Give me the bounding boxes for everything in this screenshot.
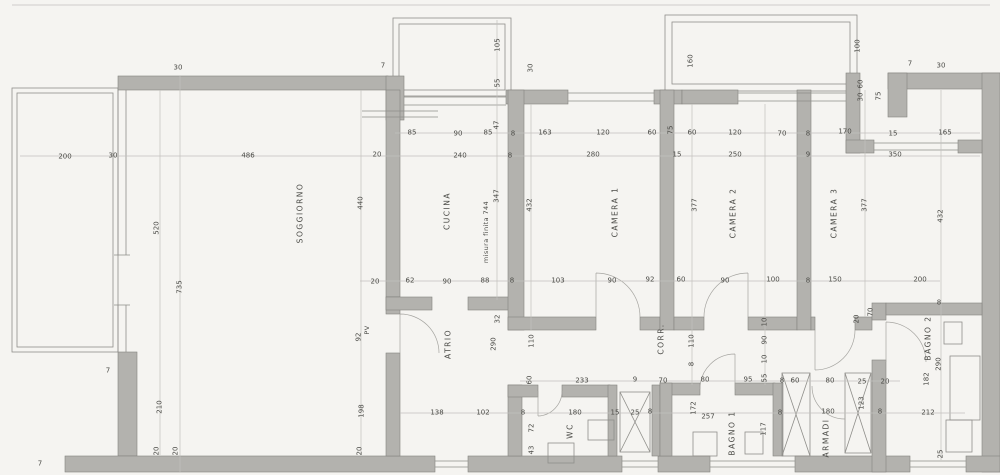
windows-and-openings: [114, 90, 966, 467]
floor-plan: SOGGIORNOCUCINACAMERA 1CAMERA 2CAMERA 3A…: [0, 0, 1000, 475]
balcony-top-center: [393, 18, 511, 96]
balcony-top-right: [665, 15, 857, 91]
terrace-left: [12, 88, 118, 352]
floor-plan-drawing: [0, 0, 1000, 475]
